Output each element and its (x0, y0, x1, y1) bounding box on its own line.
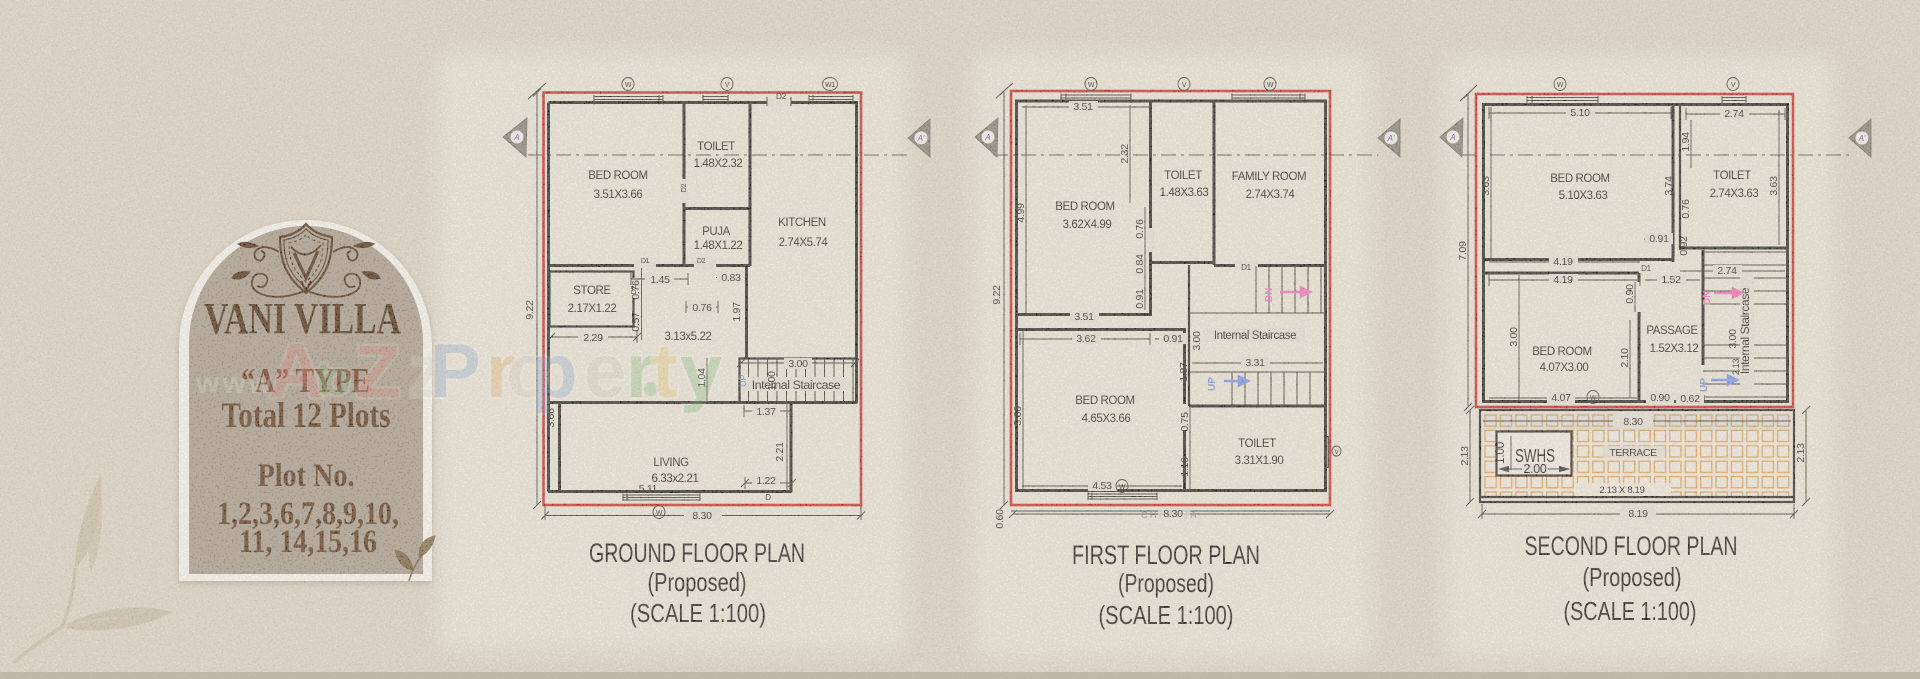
svg-text:9.22: 9.22 (991, 285, 1003, 305)
svg-text:PUJA: PUJA (702, 226, 731, 238)
svg-text:0.84: 0.84 (1134, 254, 1146, 274)
svg-text:UP: UP (1207, 377, 1218, 391)
svg-text:3.62: 3.62 (1076, 333, 1096, 345)
svg-text:TOILET: TOILET (1713, 170, 1751, 182)
svg-text:1.00: 1.00 (766, 371, 778, 391)
svg-text:BED ROOM: BED ROOM (1075, 395, 1134, 407)
svg-text:0.75: 0.75 (1179, 412, 1191, 432)
svg-text:1.87: 1.87 (1178, 362, 1190, 382)
svg-text:4.53: 4.53 (1092, 480, 1112, 492)
svg-text:BED ROOM: BED ROOM (588, 170, 647, 182)
svg-text:W: W (1119, 484, 1126, 491)
svg-text:P: P (430, 329, 481, 414)
svg-text:0.91: 0.91 (1134, 289, 1146, 309)
svg-text:8.30: 8.30 (1163, 508, 1183, 520)
svg-text:W: W (1590, 395, 1597, 402)
svg-text:2.21: 2.21 (774, 442, 786, 462)
svg-text:TOILET: TOILET (1238, 438, 1276, 450)
svg-text:Z: Z (355, 330, 400, 413)
svg-text:A: A (984, 133, 990, 142)
svg-text:3.63: 3.63 (1480, 176, 1492, 196)
svg-text:to: to (316, 352, 351, 404)
svg-text:BED ROOM: BED ROOM (1550, 173, 1609, 185)
svg-text:3.74: 3.74 (1663, 176, 1675, 196)
svg-text:FAMILY ROOM: FAMILY ROOM (1232, 171, 1306, 183)
svg-text:3.00: 3.00 (1191, 331, 1203, 351)
svg-text:BED ROOM: BED ROOM (1055, 201, 1114, 213)
svg-text:3.66: 3.66 (1012, 406, 1024, 426)
svg-text:0.62: 0.62 (1680, 393, 1700, 405)
svg-text:2.13: 2.13 (1459, 446, 1471, 466)
svg-text:W: W (656, 510, 663, 517)
svg-text:3.51X3.66: 3.51X3.66 (594, 189, 643, 201)
svg-text:DN: DN (1702, 291, 1713, 305)
svg-text:(Proposed): (Proposed) (1583, 562, 1682, 592)
svg-text:1.48X3.63: 1.48X3.63 (1160, 187, 1209, 199)
svg-text:0.76: 0.76 (692, 302, 712, 314)
svg-text:LIVING: LIVING (653, 457, 689, 469)
svg-text:0.90: 0.90 (1650, 392, 1670, 404)
svg-text:KITCHEN: KITCHEN (778, 217, 826, 229)
svg-text:0.60: 0.60 (994, 509, 1006, 529)
svg-text:(Proposed): (Proposed) (648, 567, 747, 597)
svg-text:2.17X1.22: 2.17X1.22 (568, 303, 617, 315)
svg-text:A': A' (1387, 134, 1395, 143)
svg-text:2.74X5.74: 2.74X5.74 (779, 237, 829, 249)
svg-text:(SCALE 1:100): (SCALE 1:100) (630, 598, 766, 628)
svg-text:7.09: 7.09 (1457, 241, 1469, 261)
svg-text:5.11: 5.11 (639, 483, 658, 495)
svg-text:6.33x2.21: 6.33x2.21 (652, 473, 699, 485)
svg-text:0.83: 0.83 (721, 272, 741, 284)
svg-text:W: W (1267, 82, 1274, 89)
svg-text:1.37: 1.37 (756, 406, 776, 418)
svg-text:D2: D2 (631, 285, 638, 294)
svg-text:3.51: 3.51 (1073, 101, 1093, 113)
svg-text:2.74X3.74: 2.74X3.74 (1246, 189, 1296, 201)
svg-text:2.10: 2.10 (1619, 348, 1631, 368)
svg-text:0.76: 0.76 (1680, 199, 1692, 219)
svg-text:STORE: STORE (573, 285, 611, 297)
svg-text:W: W (625, 82, 632, 89)
svg-text:A': A' (917, 134, 925, 143)
svg-text:0.91: 0.91 (1649, 233, 1669, 245)
svg-text:D1: D1 (641, 258, 650, 265)
svg-text:SECOND FLOOR PLAN: SECOND FLOOR PLAN (1525, 531, 1738, 561)
svg-text:0.90: 0.90 (1624, 284, 1636, 304)
svg-text:4.07X3.00: 4.07X3.00 (1540, 362, 1589, 374)
svg-text:1.00: 1.00 (1492, 442, 1507, 464)
svg-text:V: V (1335, 450, 1339, 456)
svg-text:W1: W1 (825, 82, 835, 89)
svg-text:3.00: 3.00 (788, 358, 808, 370)
svg-text:0.76: 0.76 (1134, 219, 1146, 239)
svg-text:5.10: 5.10 (1570, 107, 1590, 119)
svg-text:2.74: 2.74 (1717, 265, 1737, 277)
svg-text:V: V (1731, 82, 1736, 89)
svg-text:4.19: 4.19 (1553, 256, 1573, 268)
svg-text:PASSAGE: PASSAGE (1646, 325, 1698, 337)
svg-text:D: D (765, 493, 771, 502)
svg-text:D2: D2 (697, 258, 706, 265)
svg-text:Internal Staircase: Internal Staircase (1738, 287, 1752, 374)
svg-text:2.32: 2.32 (1119, 144, 1131, 164)
svg-text:1.97: 1.97 (731, 302, 743, 322)
svg-text:A: A (513, 133, 519, 142)
svg-text:1.94: 1.94 (1680, 132, 1692, 152)
svg-text:D1: D1 (1641, 264, 1651, 273)
svg-text:1.48X2.32: 1.48X2.32 (694, 158, 743, 170)
svg-text:4.99: 4.99 (1015, 203, 1027, 223)
svg-text:8.30: 8.30 (1623, 416, 1643, 428)
svg-text:1.52X3.12: 1.52X3.12 (1650, 343, 1699, 355)
svg-text:D1: D1 (1241, 263, 1251, 272)
svg-text:t: t (652, 329, 677, 414)
svg-text:5.10X3.63: 5.10X3.63 (1559, 190, 1608, 202)
svg-text:D2: D2 (681, 183, 688, 192)
svg-text:TERRACE: TERRACE (1609, 447, 1657, 459)
svg-text:2.74: 2.74 (1724, 108, 1744, 120)
svg-text:D2: D2 (776, 91, 787, 101)
svg-text:V: V (1182, 82, 1187, 89)
svg-text:V: V (725, 82, 730, 89)
svg-text:TOILET: TOILET (697, 141, 735, 153)
svg-text:2.13: 2.13 (1795, 443, 1807, 463)
svg-text:GROUND FLOOR PLAN: GROUND FLOOR PLAN (589, 538, 805, 568)
svg-text:3.31: 3.31 (1245, 357, 1265, 369)
svg-text:UP: UP (738, 374, 748, 387)
svg-text:FIRST FLOOR PLAN: FIRST FLOOR PLAN (1072, 540, 1260, 570)
svg-text:1.52: 1.52 (1661, 274, 1681, 286)
svg-text:e: e (584, 329, 626, 414)
svg-text:3.51: 3.51 (1074, 311, 1094, 323)
svg-text:2.13 X 8.19: 2.13 X 8.19 (1599, 485, 1644, 496)
svg-text:1.22: 1.22 (756, 475, 776, 487)
svg-text:p: p (531, 329, 577, 414)
svg-text:4.07: 4.07 (1551, 392, 1571, 404)
svg-text:3.62X4.99: 3.62X4.99 (1063, 219, 1112, 231)
svg-text:W: W (1088, 82, 1095, 89)
svg-text:9.22: 9.22 (524, 300, 536, 320)
svg-text:11, 14,15,16: 11, 14,15,16 (239, 524, 377, 560)
svg-text:Internal Staircase: Internal Staircase (1214, 330, 1296, 342)
svg-text:2.00: 2.00 (1524, 461, 1547, 476)
svg-text:2.74X3.63: 2.74X3.63 (1710, 188, 1759, 200)
svg-text:3.31X1.90: 3.31X1.90 (1235, 455, 1284, 467)
svg-text:1.45: 1.45 (650, 274, 670, 286)
svg-text:(Proposed): (Proposed) (1118, 568, 1214, 598)
svg-text:0.91: 0.91 (1163, 333, 1183, 345)
svg-text:UP: UP (1699, 378, 1710, 392)
svg-text:3.63: 3.63 (1768, 176, 1780, 196)
svg-text:(SCALE 1:100): (SCALE 1:100) (1099, 600, 1234, 630)
svg-text:3.00: 3.00 (1508, 327, 1520, 347)
svg-text:TOILET: TOILET (1164, 170, 1202, 182)
svg-text:(SCALE 1:100): (SCALE 1:100) (1564, 596, 1697, 626)
svg-text:A: A (1449, 133, 1455, 142)
svg-text:8.30: 8.30 (692, 510, 712, 522)
svg-text:y: y (680, 329, 722, 414)
svg-text:1.16: 1.16 (1179, 457, 1191, 477)
svg-text:BED ROOM: BED ROOM (1532, 346, 1591, 358)
svg-text:0.92: 0.92 (1678, 236, 1690, 256)
svg-text:W: W (1557, 82, 1564, 89)
svg-text:4.65X3.66: 4.65X3.66 (1082, 413, 1131, 425)
svg-text:Plot No.: Plot No. (258, 458, 355, 494)
svg-text:4.19: 4.19 (1553, 274, 1573, 286)
svg-text:DN: DN (1264, 288, 1275, 302)
svg-text:1.48X1.22: 1.48X1.22 (694, 240, 743, 252)
svg-text:8.19: 8.19 (1628, 508, 1648, 520)
svg-text:A': A' (1858, 134, 1866, 143)
